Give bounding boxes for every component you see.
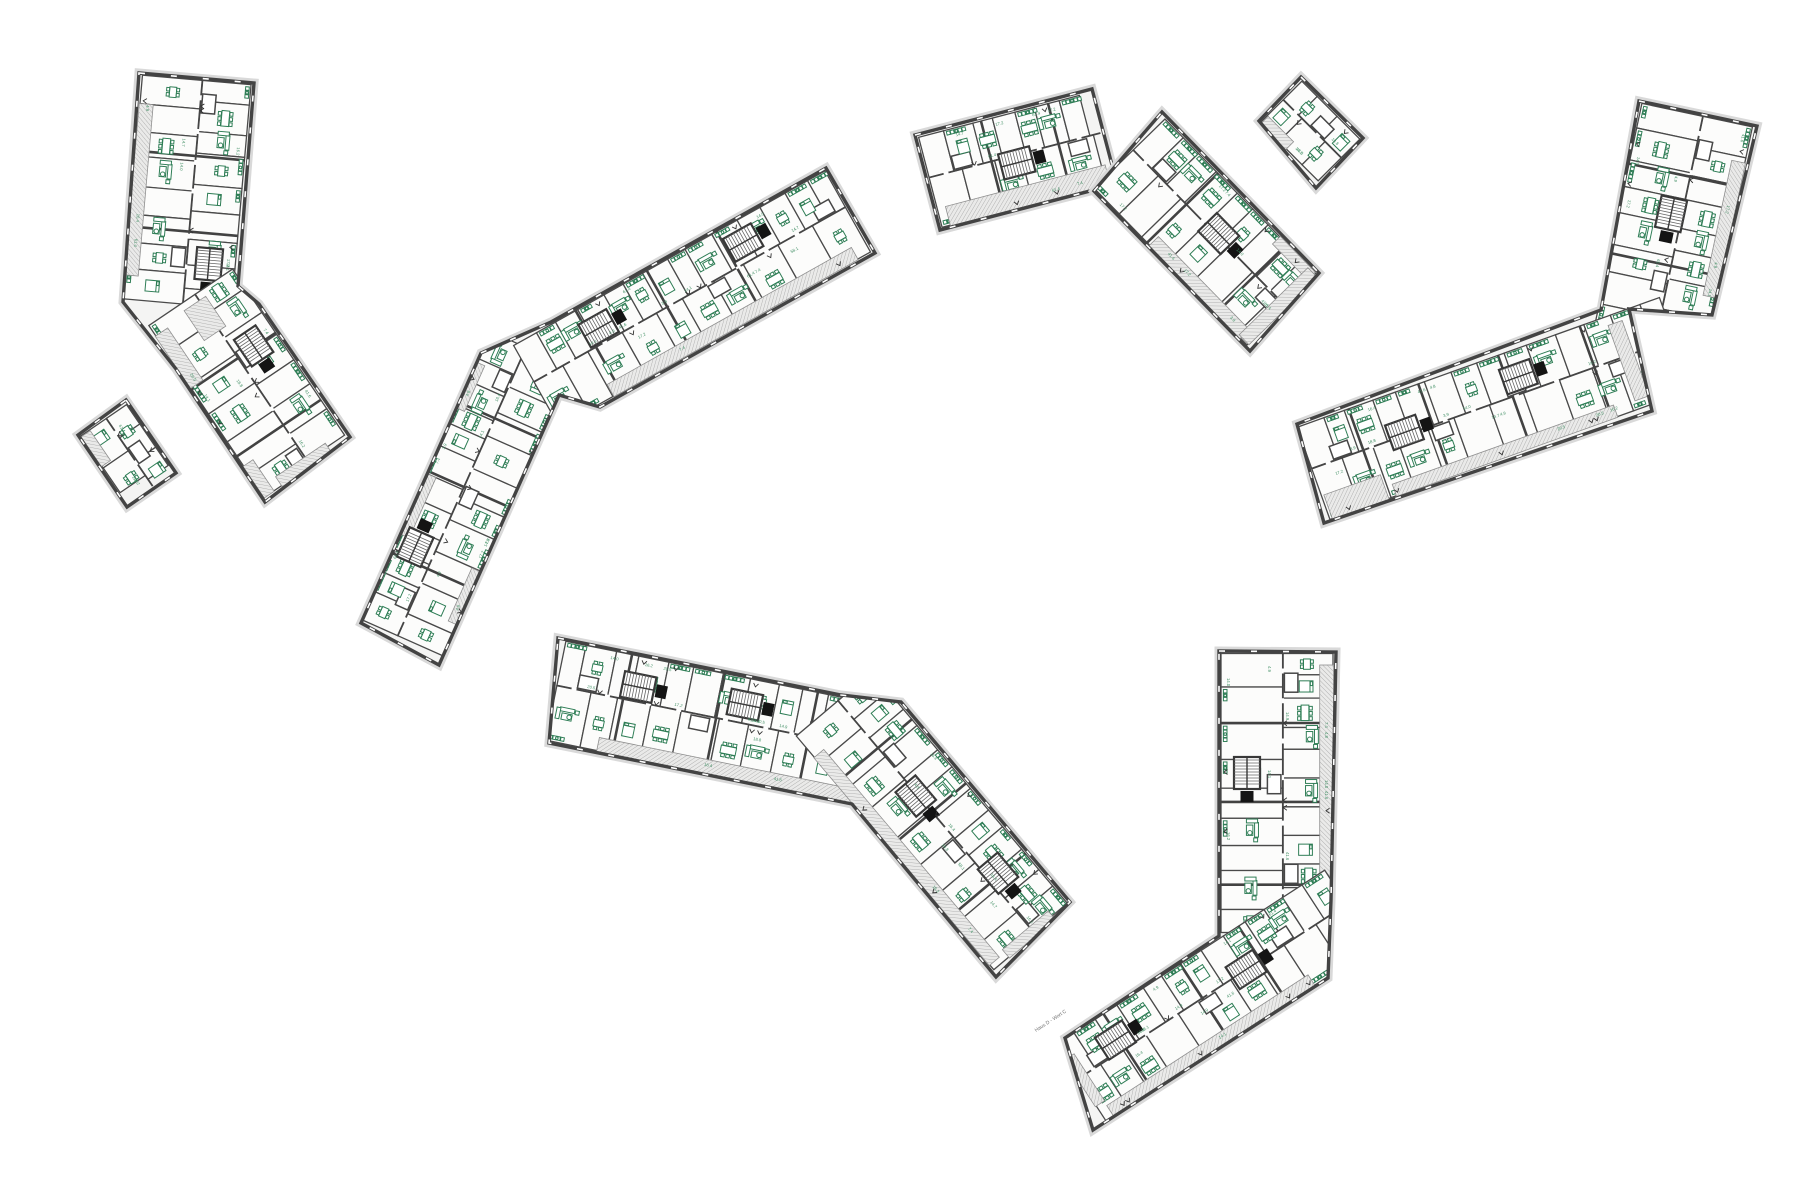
svg-text:7.4: 7.4	[1324, 722, 1329, 728]
svg-text:41.6: 41.6	[1285, 852, 1290, 861]
svg-text:16.2: 16.2	[235, 147, 241, 156]
svg-text:41.6: 41.6	[1324, 791, 1329, 800]
svg-text:4.8: 4.8	[1324, 732, 1329, 738]
svg-text:14.1: 14.1	[1267, 770, 1272, 779]
svg-text:16.4: 16.4	[135, 214, 141, 223]
svg-text:61.4: 61.4	[133, 238, 139, 247]
svg-text:4.9: 4.9	[145, 105, 151, 112]
svg-text:14.9: 14.9	[1285, 712, 1290, 721]
svg-text:14.7: 14.7	[181, 138, 187, 147]
svg-text:4.9: 4.9	[1267, 666, 1272, 672]
svg-text:14.0: 14.0	[1226, 678, 1231, 687]
svg-text:16.2: 16.2	[1226, 832, 1231, 841]
svg-text:14.0: 14.0	[1324, 780, 1329, 789]
svg-text:17.2: 17.2	[226, 259, 232, 268]
svg-text:14.0: 14.0	[179, 162, 185, 171]
